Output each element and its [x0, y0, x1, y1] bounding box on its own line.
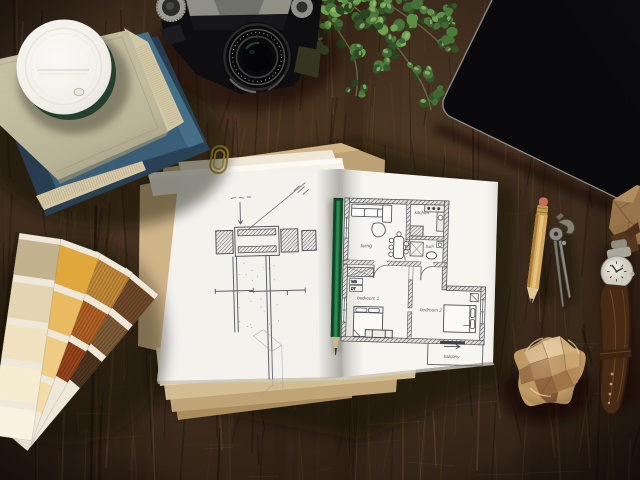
- svg-text:WB: WB: [351, 280, 358, 284]
- svg-text:living: living: [361, 243, 373, 249]
- svg-text:kitchen: kitchen: [415, 210, 430, 215]
- svg-text:balcony: balcony: [444, 354, 461, 359]
- svg-text:bedroom 2: bedroom 2: [420, 307, 443, 313]
- svg-text:bath: bath: [426, 244, 435, 249]
- svg-text:bedroom 1: bedroom 1: [357, 295, 380, 301]
